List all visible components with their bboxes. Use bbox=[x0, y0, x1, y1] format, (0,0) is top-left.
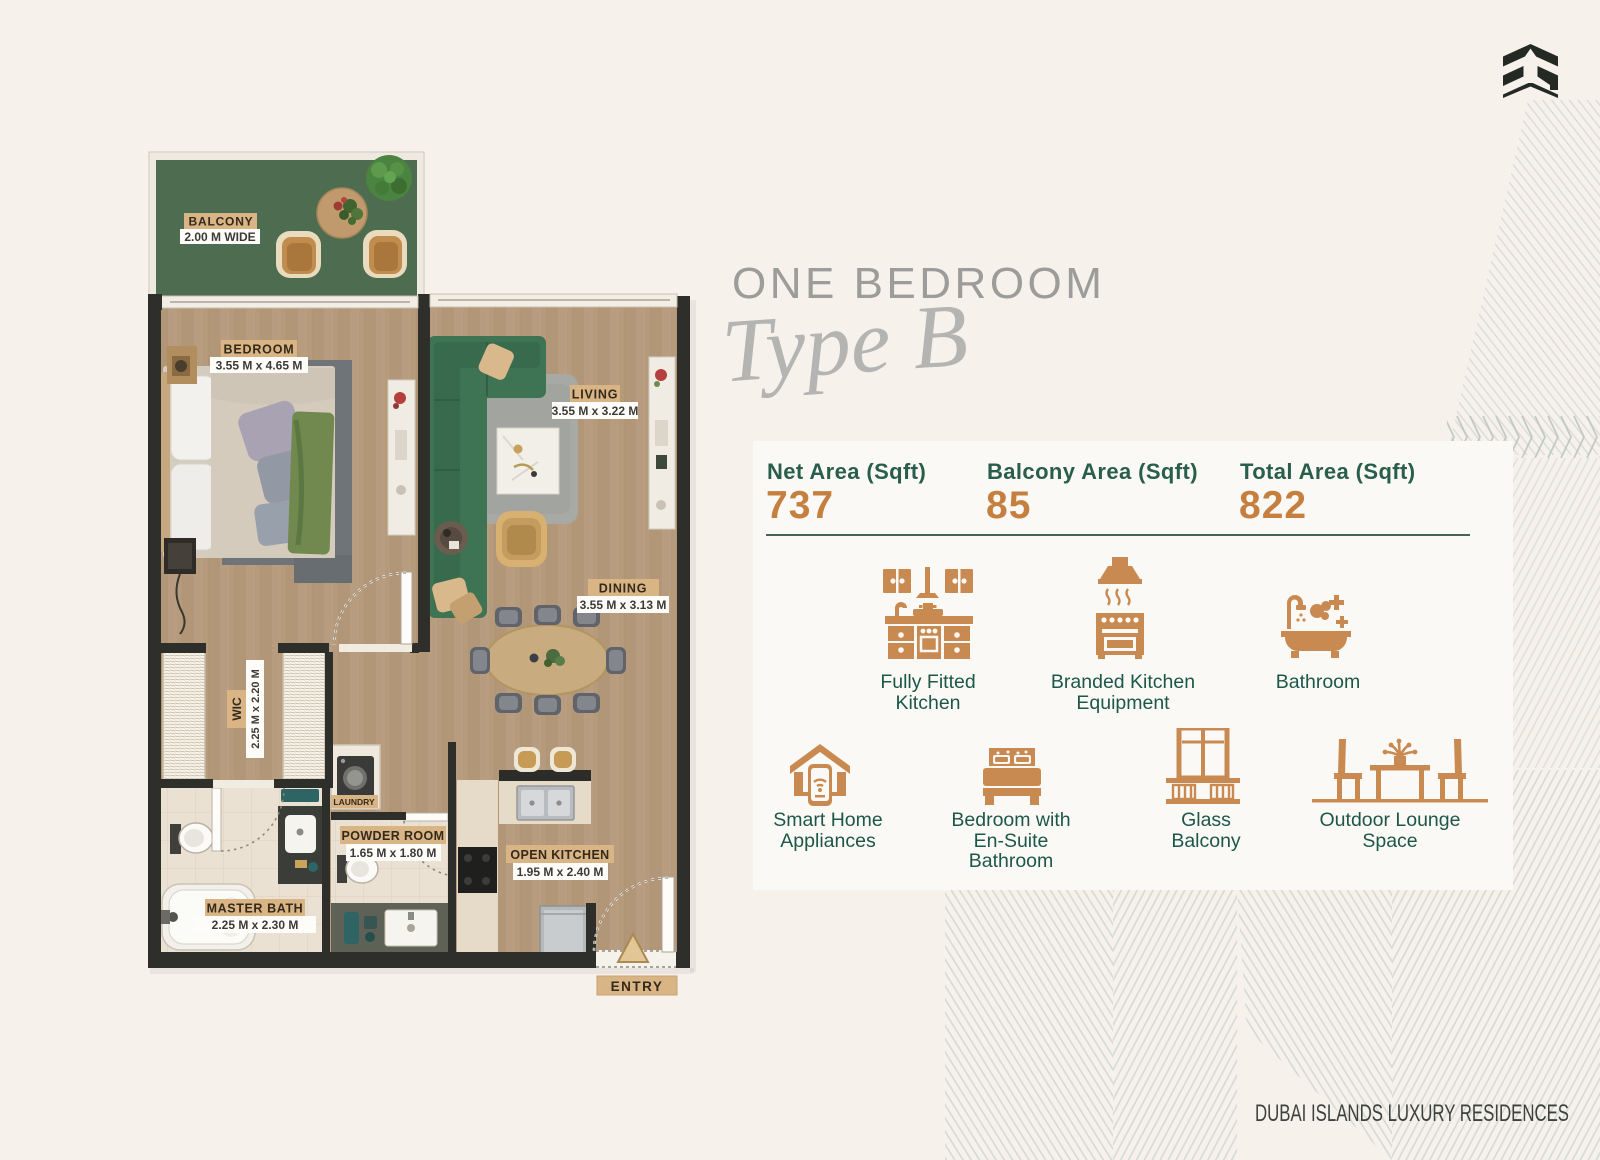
svg-text:2.25 M x 2.20 M: 2.25 M x 2.20 M bbox=[250, 669, 262, 749]
svg-text:1.95 M x 2.40 M: 1.95 M x 2.40 M bbox=[517, 865, 604, 879]
svg-text:3.55 M x 3.22 M: 3.55 M x 3.22 M bbox=[552, 404, 639, 418]
svg-text:2.25 M x 2.30 M: 2.25 M x 2.30 M bbox=[212, 918, 299, 932]
svg-text:WIC: WIC bbox=[230, 697, 244, 721]
svg-text:BALCONY: BALCONY bbox=[189, 215, 254, 229]
svg-text:OPEN KITCHEN: OPEN KITCHEN bbox=[510, 848, 609, 862]
svg-text:DINING: DINING bbox=[599, 582, 648, 596]
svg-text:LIVING: LIVING bbox=[572, 388, 618, 402]
svg-text:LAUNDRY: LAUNDRY bbox=[333, 797, 375, 807]
svg-text:ENTRY: ENTRY bbox=[611, 979, 664, 994]
svg-text:MASTER BATH: MASTER BATH bbox=[207, 902, 304, 916]
svg-text:2.00 M WIDE: 2.00 M WIDE bbox=[184, 230, 255, 244]
svg-text:BEDROOM: BEDROOM bbox=[224, 343, 295, 357]
svg-text:POWDER ROOM: POWDER ROOM bbox=[341, 829, 444, 843]
svg-text:3.55 M x 4.65 M: 3.55 M x 4.65 M bbox=[216, 359, 303, 373]
svg-text:1.65 M x 1.80 M: 1.65 M x 1.80 M bbox=[350, 846, 437, 860]
svg-text:3.55 M x 3.13 M: 3.55 M x 3.13 M bbox=[580, 598, 667, 612]
